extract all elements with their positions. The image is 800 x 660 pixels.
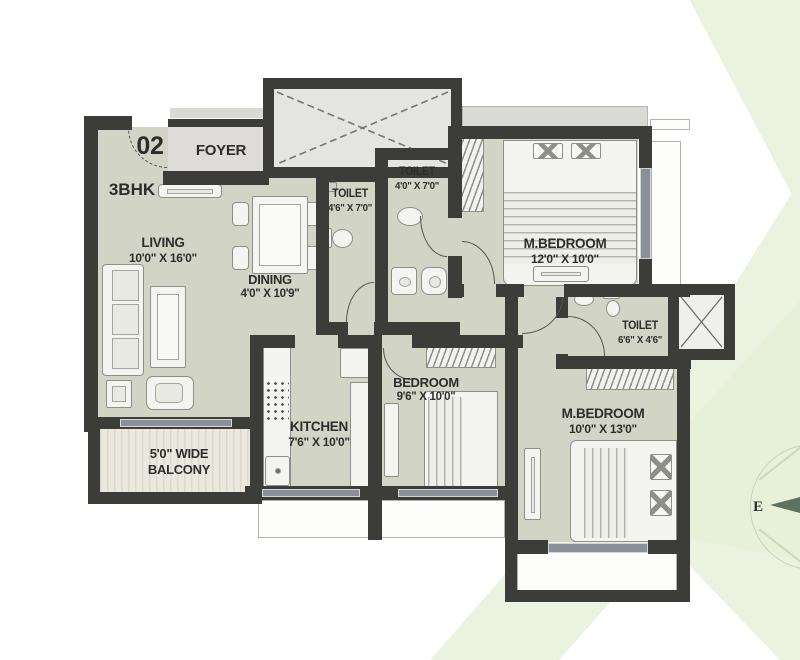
sink-drain	[275, 468, 281, 474]
side-ledge	[651, 141, 681, 286]
wall-segment	[518, 540, 548, 554]
wall-segment	[648, 540, 677, 554]
kitchen-label: KITCHEN 7'6" X 10'0"	[288, 419, 350, 450]
kitchen-sink-unit	[265, 456, 290, 486]
room-name: TOILET	[618, 320, 662, 334]
wash-fixture-inner	[429, 276, 441, 288]
room-name: LIVING	[129, 235, 197, 251]
dining-chair	[232, 202, 249, 226]
mbedroom2-label: M.BEDROOM 10'0" X 13'0"	[562, 406, 645, 437]
wash-fixture-inner	[399, 277, 411, 287]
wall-segment	[505, 590, 690, 602]
room-dims: 7'6" X 10'0"	[288, 435, 350, 449]
mbedroom2-balcony	[517, 552, 677, 592]
top-ledge	[650, 119, 690, 130]
wall-segment	[84, 116, 98, 432]
sofa	[102, 264, 144, 376]
kitchen-platform-top	[340, 348, 370, 378]
balcony-line2: BALCONY	[148, 462, 210, 478]
sofa-cushion	[112, 304, 139, 335]
window	[548, 543, 648, 553]
pillow	[650, 454, 672, 480]
wall-segment	[412, 335, 523, 348]
wall-segment	[168, 119, 268, 127]
dining-table-inner	[259, 204, 301, 266]
room-dims: 4'6" X 7'0"	[328, 202, 372, 215]
wc-bowl	[606, 300, 620, 317]
window	[398, 489, 498, 497]
wash-fixture	[391, 267, 417, 295]
room-dims: 10'0" X 16'0"	[129, 251, 197, 265]
bench	[533, 266, 589, 282]
window	[262, 489, 360, 497]
room-dims: 12'0" X 10'0"	[524, 252, 607, 266]
wall-segment	[263, 78, 462, 89]
dining-label: DINING 4'0" X 10'9"	[241, 272, 300, 301]
window	[120, 419, 232, 427]
room-dims: 9'6" X 10'0"	[393, 391, 459, 405]
toilet2-label: TOILET 4'0" X 7'0"	[395, 166, 439, 192]
wall-segment	[338, 335, 370, 348]
armchair-inner	[155, 383, 183, 403]
wc-bowl	[332, 229, 353, 248]
wall-segment	[374, 322, 460, 335]
room-dims: 4'0" X 10'9"	[241, 288, 300, 302]
wall-segment	[639, 126, 652, 168]
window	[640, 168, 651, 259]
unit-number-label: 02	[136, 131, 163, 161]
sofa-cushion	[112, 270, 139, 301]
pillow	[571, 143, 601, 159]
tv-console-inner	[167, 189, 213, 194]
room-name: TOILET	[395, 166, 439, 180]
bedside-unit	[384, 403, 399, 477]
pillow	[650, 490, 672, 516]
dining-table	[252, 196, 308, 274]
room-name: KITCHEN	[288, 419, 350, 435]
wall-segment	[375, 152, 388, 324]
room-name: DINING	[241, 272, 300, 288]
wall-segment	[448, 284, 464, 297]
sofa-cushion	[112, 338, 139, 369]
bed-blanket	[428, 397, 462, 487]
floorplan-page: { "plan": { "unit_number": "02", "unit_t…	[0, 0, 800, 660]
wall-segment	[448, 126, 462, 218]
wall-segment	[263, 78, 274, 178]
corridor-strip-left	[170, 108, 263, 118]
room-dims: 6'6" X 4'6"	[618, 334, 662, 347]
wall-segment	[88, 492, 262, 504]
room-dims: 4'0" X 7'0"	[395, 180, 439, 193]
unit-type-label: 3BHK	[109, 180, 155, 200]
wall-segment	[677, 356, 690, 602]
floor-plan: 02 FOYER 3BHK LIVING 10'0" X 16'0" DININ…	[0, 0, 800, 660]
duct-cross-icon	[679, 295, 724, 349]
wall-segment	[496, 284, 524, 297]
coffee-table-inner	[157, 294, 179, 360]
armchair	[146, 376, 194, 410]
service-ledge-kitchen	[258, 500, 369, 538]
wall-segment	[368, 335, 382, 540]
living-label: LIVING 10'0" X 16'0"	[129, 235, 197, 266]
pillow	[533, 143, 563, 159]
wall-segment	[668, 284, 735, 295]
wardrobe	[426, 346, 496, 368]
wall-segment	[451, 126, 652, 139]
wall-segment	[250, 335, 295, 348]
room-name: TOILET	[328, 188, 372, 202]
side-table	[106, 380, 132, 408]
toilet3-label: TOILET 6'6" X 4'6"	[618, 320, 662, 346]
bedroom-label: BEDROOM 9'6" X 10'0"	[393, 375, 459, 404]
dining-chair	[232, 246, 249, 270]
bench-inner	[541, 272, 581, 276]
tv-console	[158, 184, 222, 198]
room-name: BEDROOM	[393, 375, 459, 391]
service-ledge-bedroom	[381, 500, 505, 538]
side-table-inner	[112, 386, 126, 402]
kitchen-hob	[265, 380, 289, 420]
duct-shaft	[679, 295, 724, 349]
coffee-table	[150, 286, 186, 368]
bed-blanket	[584, 448, 628, 538]
compass-east-label: E	[753, 498, 763, 516]
room-name: M.BEDROOM	[524, 236, 607, 252]
wall-segment	[163, 171, 269, 185]
corridor-strip-right	[462, 106, 648, 128]
room-name: M.BEDROOM	[562, 406, 645, 422]
wall-segment	[316, 322, 348, 335]
dresser	[524, 448, 541, 520]
room-dims: 10'0" X 13'0"	[562, 422, 645, 436]
balcony-line1: 5'0" WIDE	[148, 446, 210, 462]
toilet1-label: TOILET 4'6" X 7'0"	[328, 188, 372, 214]
foyer-label: FOYER	[196, 142, 246, 160]
wash-fixture	[421, 267, 447, 295]
dresser-inner	[531, 457, 535, 513]
mbedroom1-label: M.BEDROOM 12'0" X 10'0"	[524, 236, 607, 267]
wall-segment	[316, 170, 382, 182]
balcony-label: 5'0" WIDE BALCONY	[148, 446, 210, 477]
